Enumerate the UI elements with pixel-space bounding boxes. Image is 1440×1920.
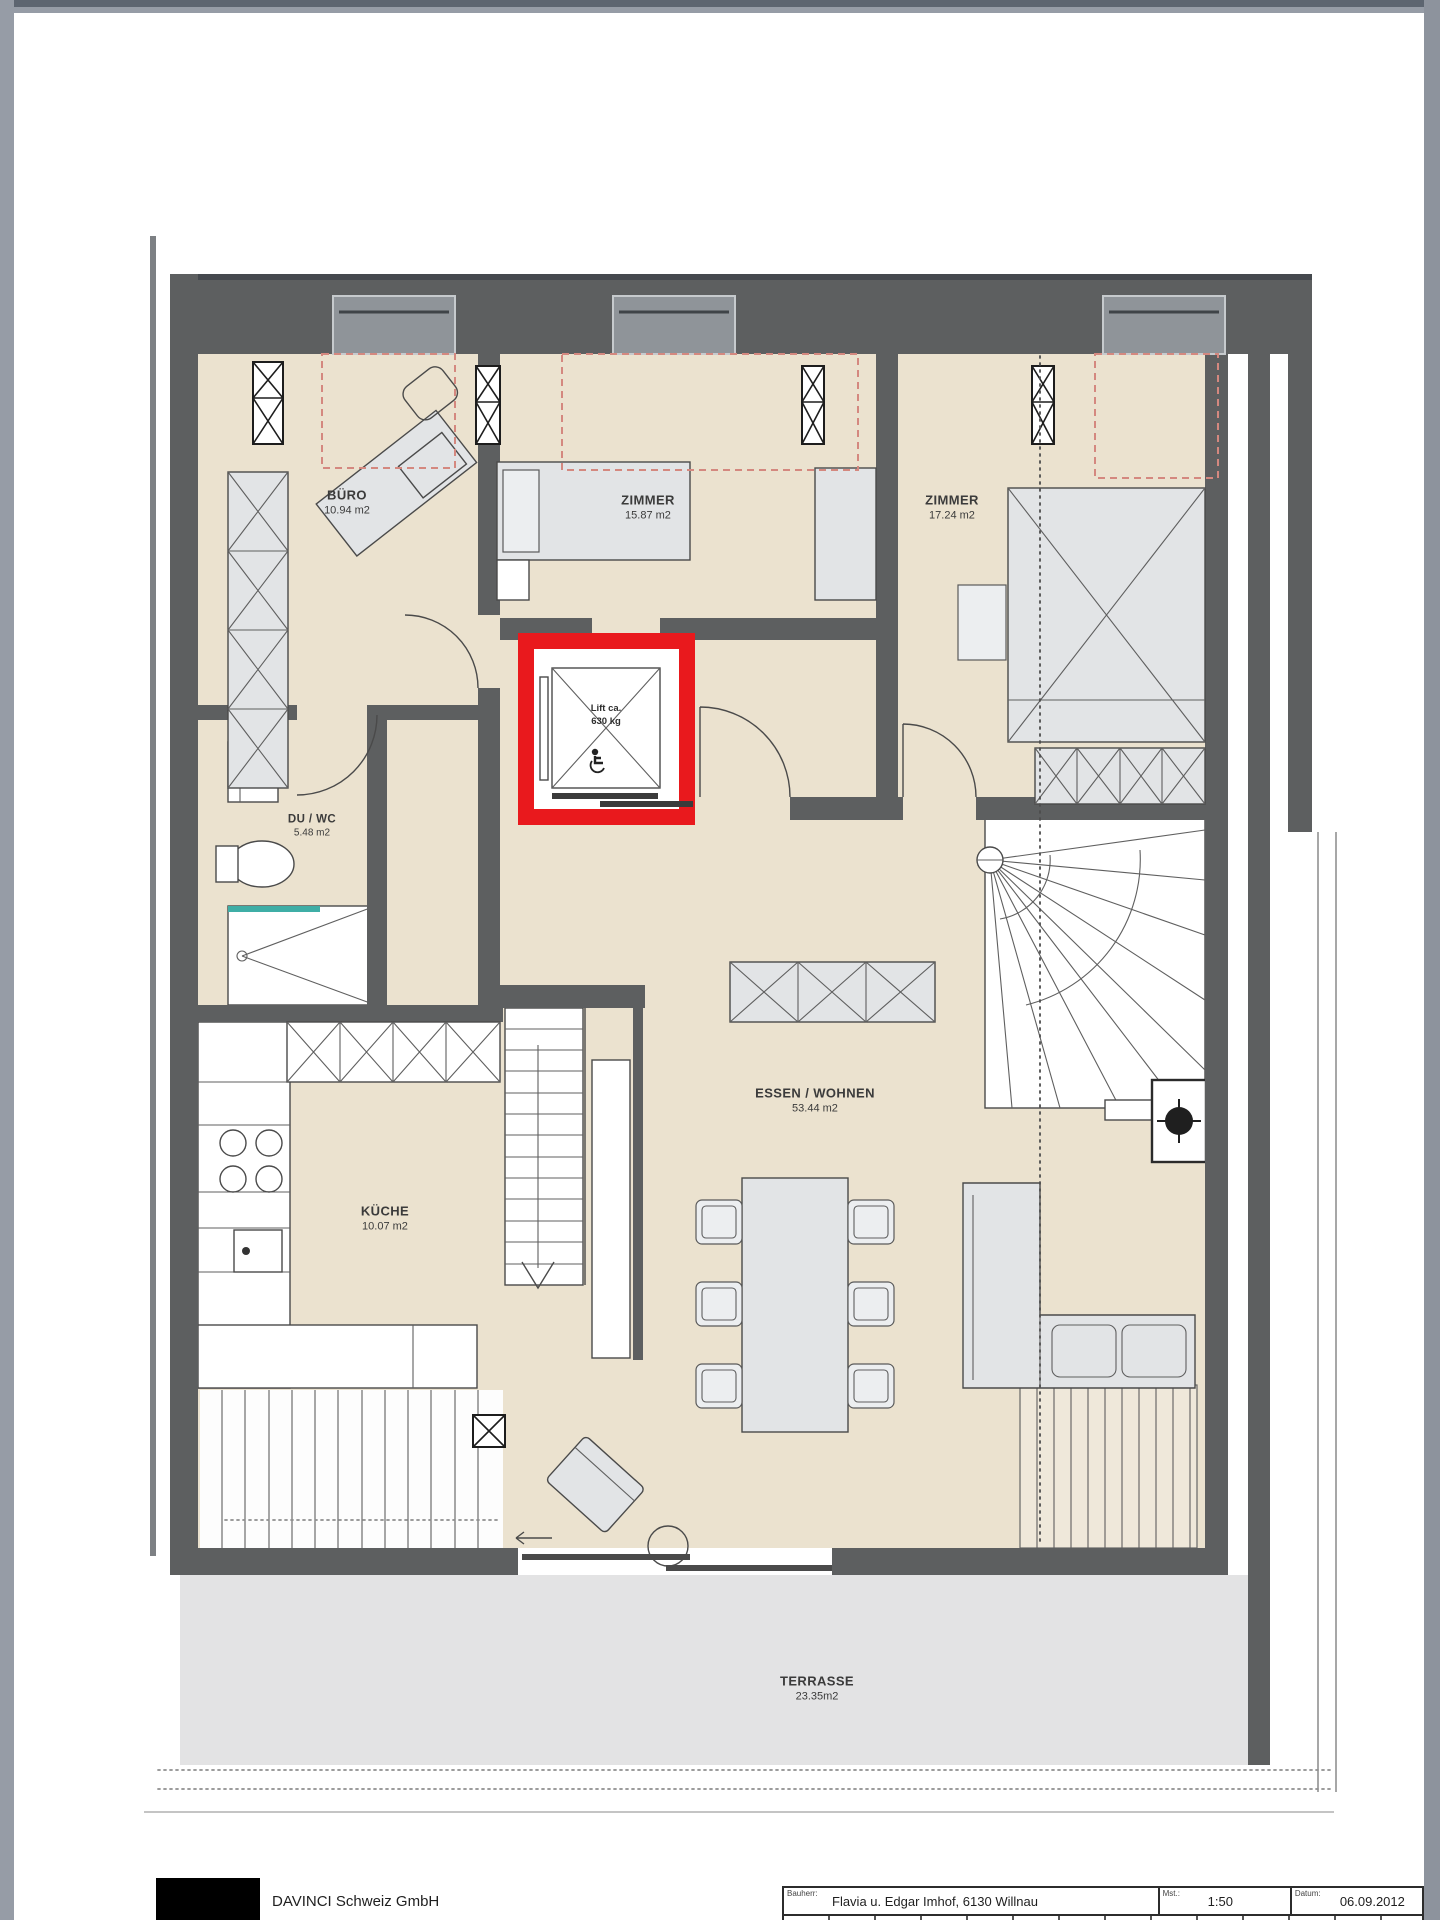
- wardrobe-zimmer2: [1035, 748, 1205, 804]
- room-label-zimmer1: ZIMMER 15.87 m2: [621, 493, 675, 522]
- deck-left: [200, 1390, 503, 1548]
- window-2: [613, 296, 735, 354]
- sliding-door-panel: [666, 1565, 832, 1571]
- wall-right-outer: [1288, 354, 1312, 832]
- right-railing: [1318, 832, 1336, 1792]
- sideboard: [730, 962, 935, 1022]
- window-1: [333, 296, 455, 354]
- terrace-railing-dotted: [158, 1770, 1330, 1789]
- staircase-winder: [977, 817, 1205, 1120]
- terrace-floor: [180, 1575, 1248, 1765]
- room-label-kueche: KÜCHE 10.07 m2: [361, 1204, 409, 1233]
- title-cell-datum: Datum: 06.09.2012: [1290, 1888, 1422, 1914]
- room-label-buero: BÜRO 10.94 m2: [324, 488, 370, 517]
- wall-bottom-right: [832, 1548, 1205, 1575]
- toilet: [230, 841, 294, 887]
- chair: [848, 1200, 894, 1244]
- scanned-floor-plan-page: BÜRO 10.94 m2 ZIMMER 15.87 m2 ZIMMER 17.…: [0, 0, 1440, 1920]
- elevator-label: Lift ca. 630 kg: [591, 703, 622, 729]
- chair: [696, 1282, 742, 1326]
- wall-bottom-left: [170, 1548, 518, 1575]
- title-cell-bauherr: Bauherr: Flavia u. Edgar Imhof, 6130 Wil…: [784, 1888, 1158, 1914]
- nightstand: [958, 585, 1006, 660]
- wardrobe-buero: [228, 472, 288, 788]
- chair: [696, 1364, 742, 1408]
- room-label-zimmer2: ZIMMER 17.24 m2: [925, 493, 979, 522]
- nightstand: [497, 560, 529, 600]
- scan-border-top-dark: [0, 0, 1440, 7]
- sliding-door-panel: [522, 1554, 690, 1560]
- title-block-second-row: [782, 1916, 1424, 1920]
- wall-right-mid: [1248, 354, 1270, 1765]
- fireplace: [1152, 1080, 1206, 1162]
- chair: [848, 1364, 894, 1408]
- logo-box: [156, 1878, 260, 1920]
- kitchen-cabinets: [287, 1022, 500, 1082]
- dining-table-set: [696, 1178, 894, 1432]
- scan-border-left: [0, 0, 14, 1920]
- dresser-zimmer1: [815, 468, 876, 600]
- deck-right: [1020, 1385, 1197, 1548]
- room-label-essen-wohnen: ESSEN / WOHNEN 53.44 m2: [755, 1086, 875, 1115]
- scan-border-right: [1424, 0, 1440, 1920]
- room-label-terrasse: TERRASSE 23.35m2: [780, 1674, 854, 1703]
- wall-left: [170, 274, 198, 1575]
- title-block-table: Bauherr: Flavia u. Edgar Imhof, 6130 Wil…: [782, 1886, 1424, 1916]
- chair: [696, 1200, 742, 1244]
- window-3: [1103, 296, 1225, 354]
- neighbour-wall-line: [150, 236, 156, 1556]
- title-cell-massstab: Mst.: 1:50: [1158, 1888, 1290, 1914]
- wall-right-inner: [1205, 354, 1228, 1575]
- kitchen-counter-bottom: [198, 1325, 477, 1388]
- shower: [228, 906, 370, 1005]
- company-name: DAVINCI Schweiz GmbH: [272, 1893, 439, 1910]
- chair: [848, 1282, 894, 1326]
- room-label-duwc: DU / WC 5.48 m2: [288, 814, 336, 839]
- floor-plan-canvas: [0, 0, 1440, 1920]
- elevator: [518, 633, 695, 825]
